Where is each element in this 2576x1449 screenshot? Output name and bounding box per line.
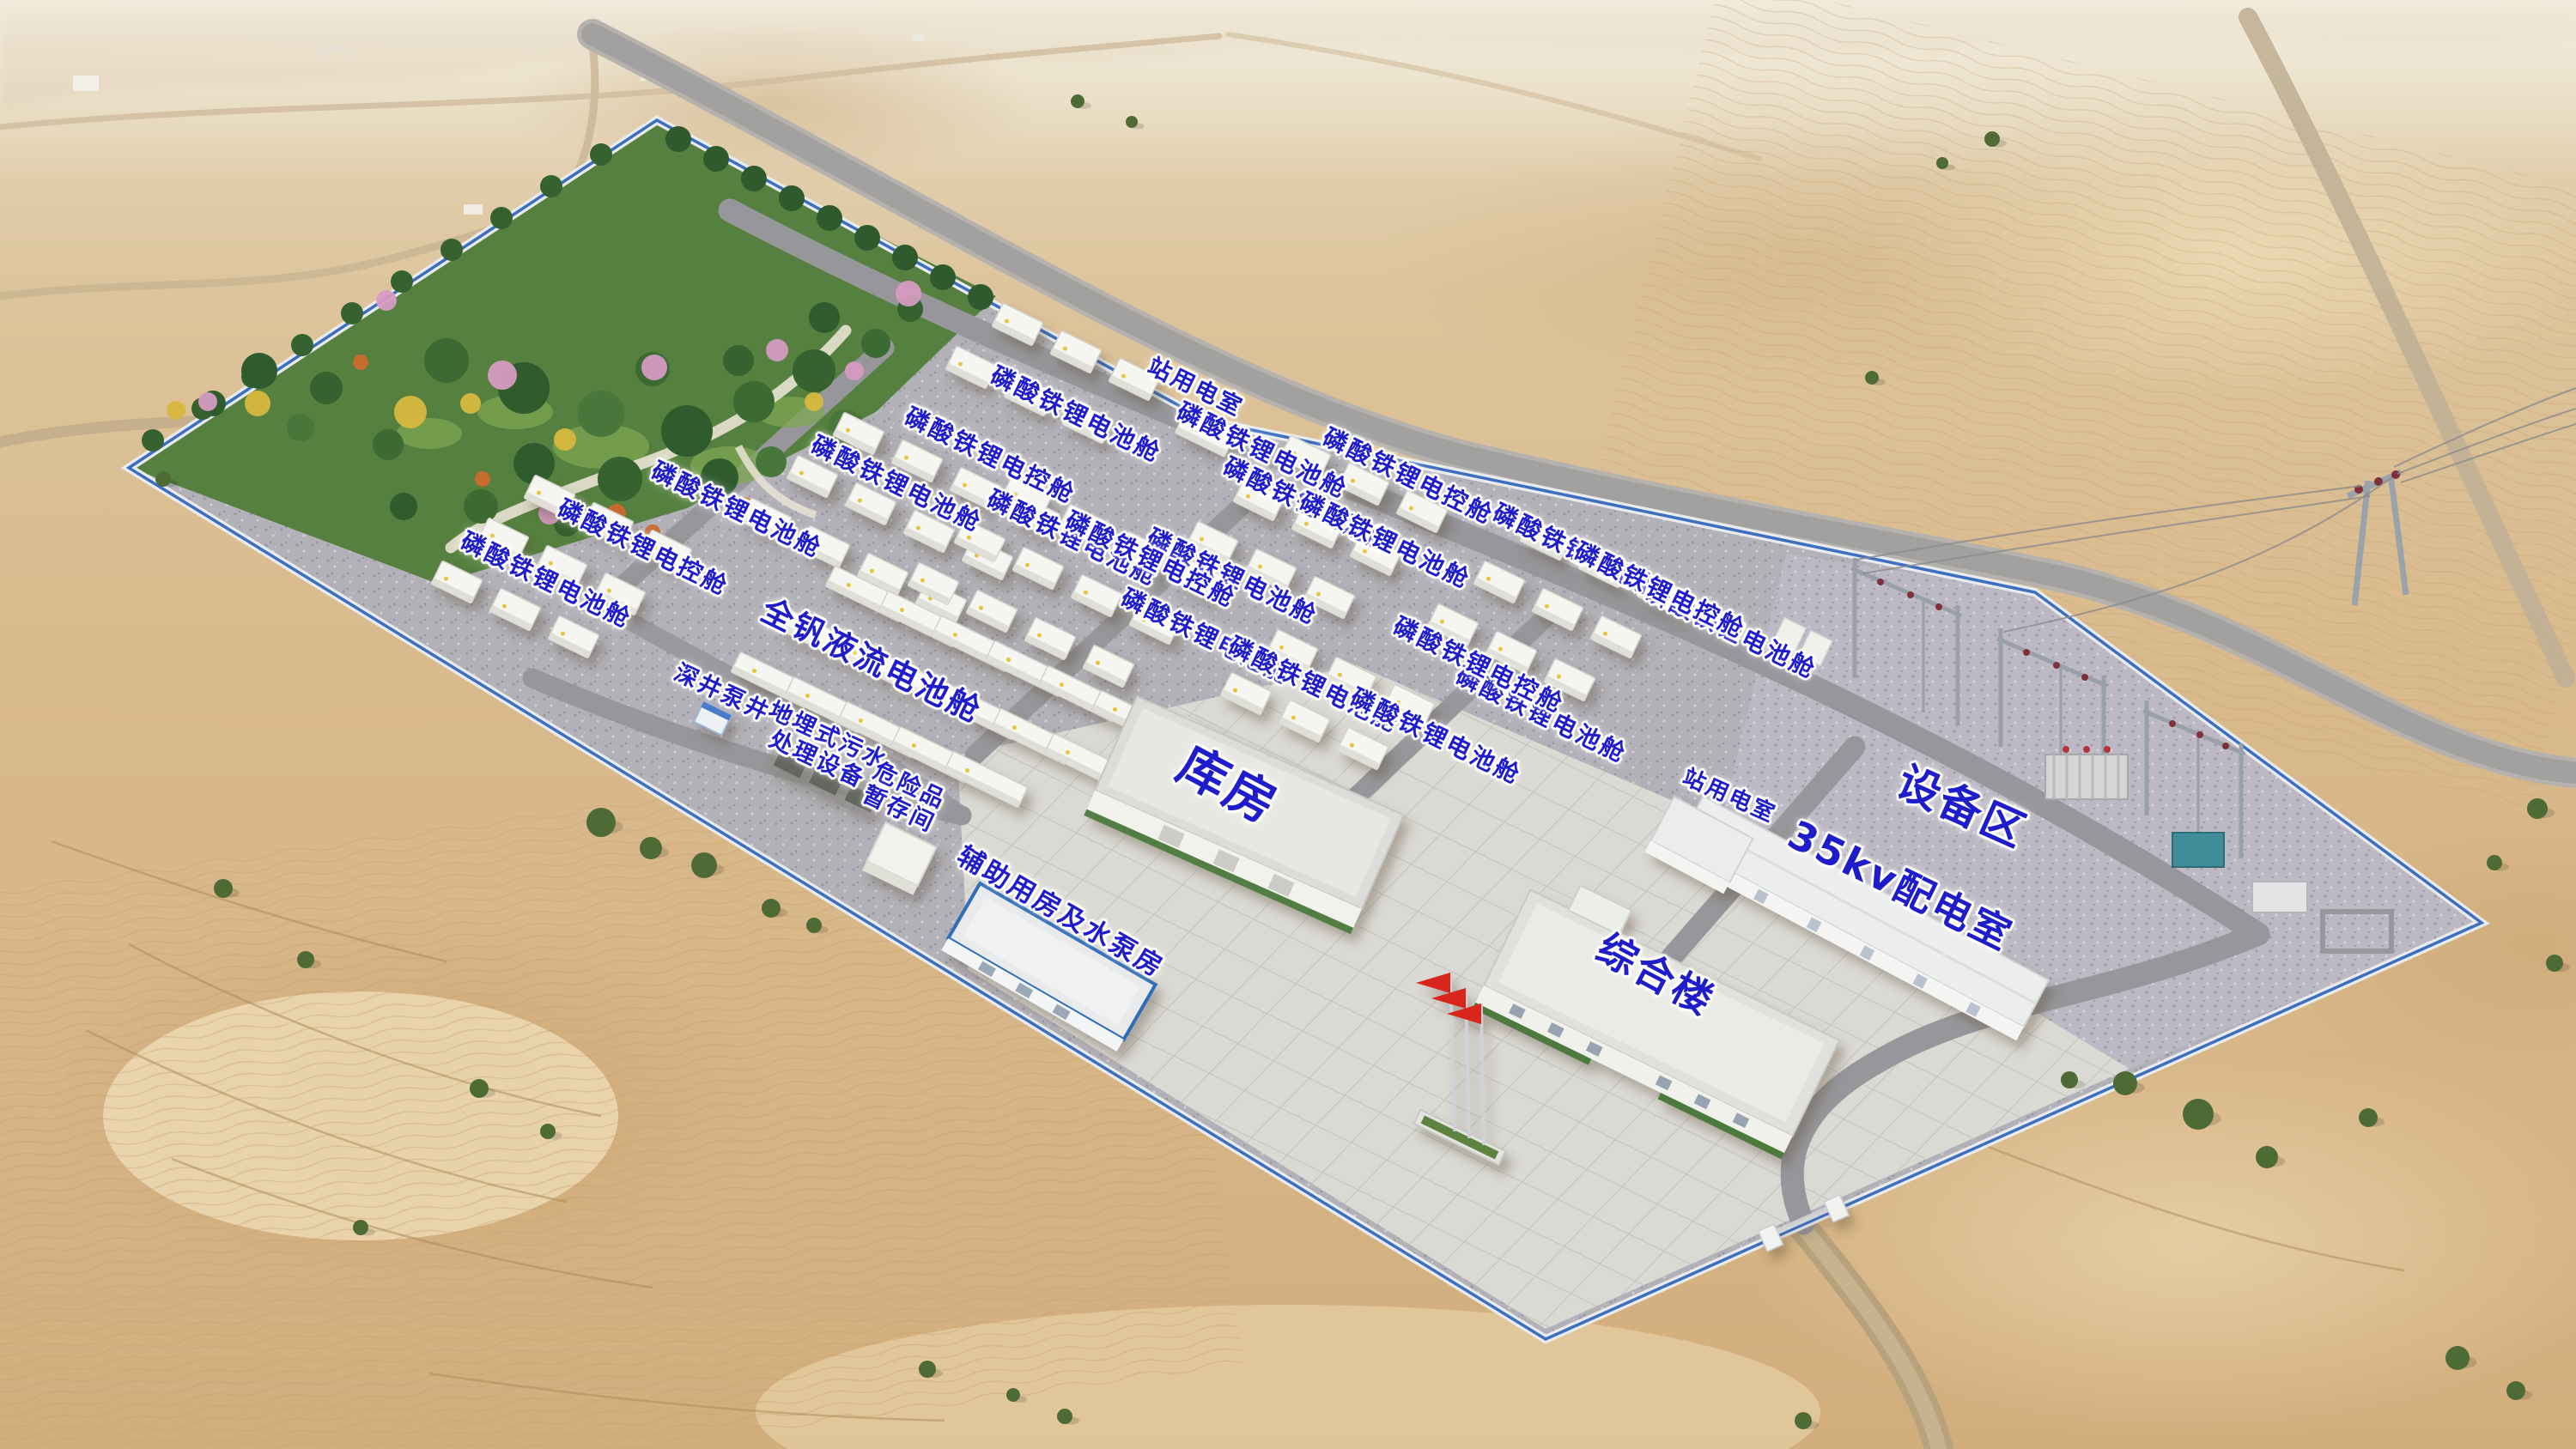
control-cabinet: [2252, 882, 2307, 912]
teal-reactor-unit: [2172, 833, 2224, 867]
aerial-site-view: 磷酸铁锂电池舱磷酸铁锂电池舱磷酸铁锂电池舱磷酸铁锂电池舱磷酸铁锂电池舱磷酸铁锂电…: [0, 0, 2576, 1449]
distant-building: [73, 76, 99, 91]
terrain-and-facility-render: [0, 0, 2576, 1449]
main-transformer: [2045, 746, 2128, 799]
